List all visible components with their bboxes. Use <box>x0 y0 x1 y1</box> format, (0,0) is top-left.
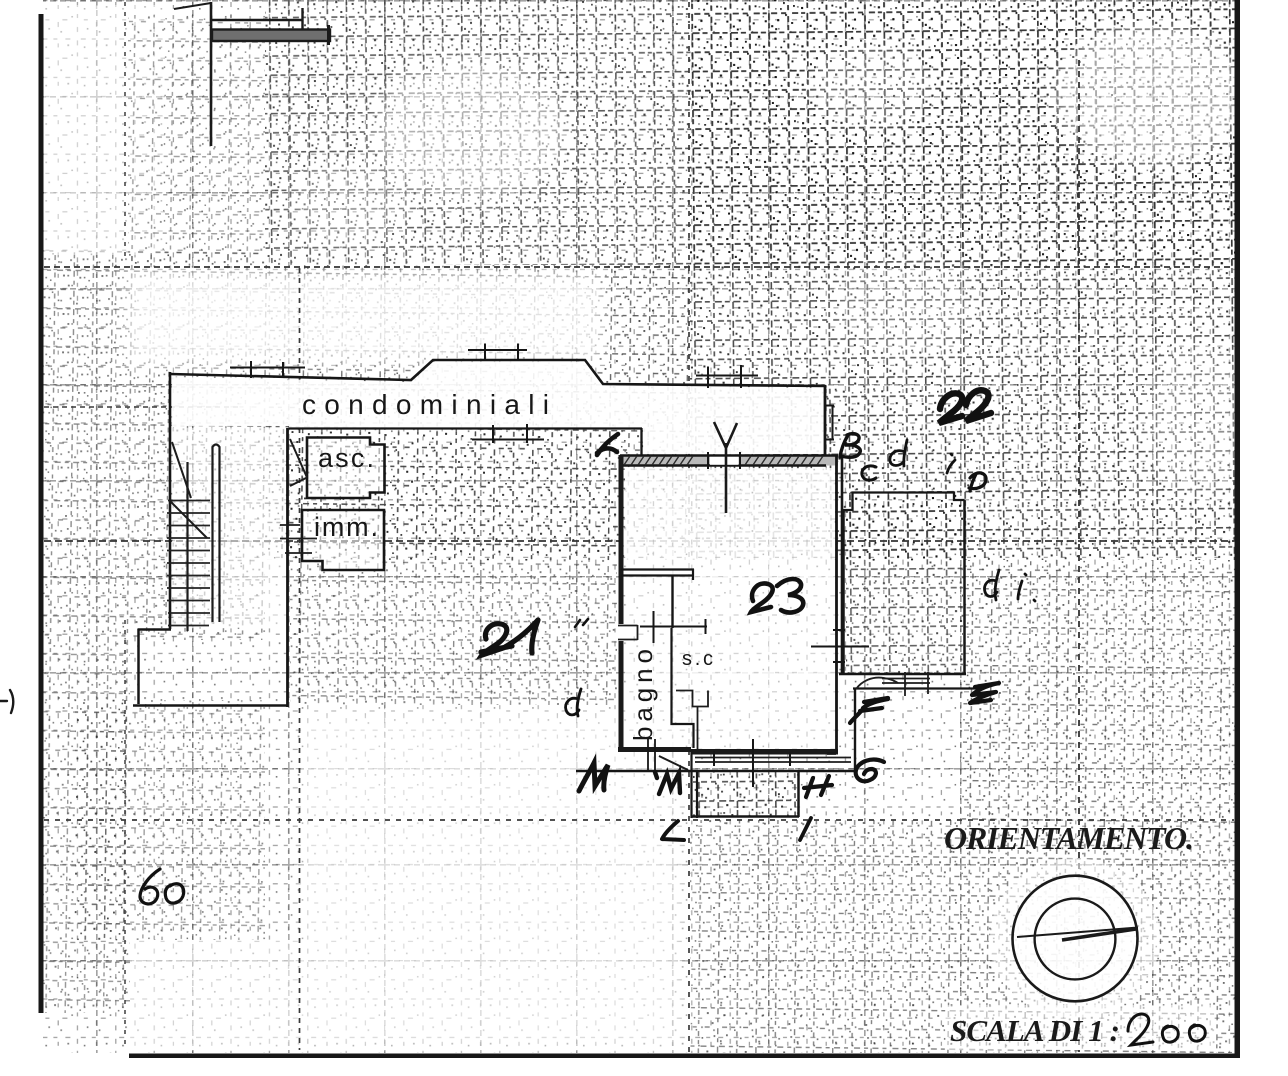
svg-text:ORIENTAMENTO.: ORIENTAMENTO. <box>944 820 1194 856</box>
svg-text:imm.: imm. <box>314 512 378 542</box>
svg-text:bagno: bagno <box>628 649 658 741</box>
svg-text:condominiali: condominiali <box>302 389 555 420</box>
svg-text:SCALA DI 1 :: SCALA DI 1 : <box>950 1013 1120 1048</box>
svg-text:s.c: s.c <box>682 648 713 670</box>
svg-text:asc.: asc. <box>318 443 374 473</box>
